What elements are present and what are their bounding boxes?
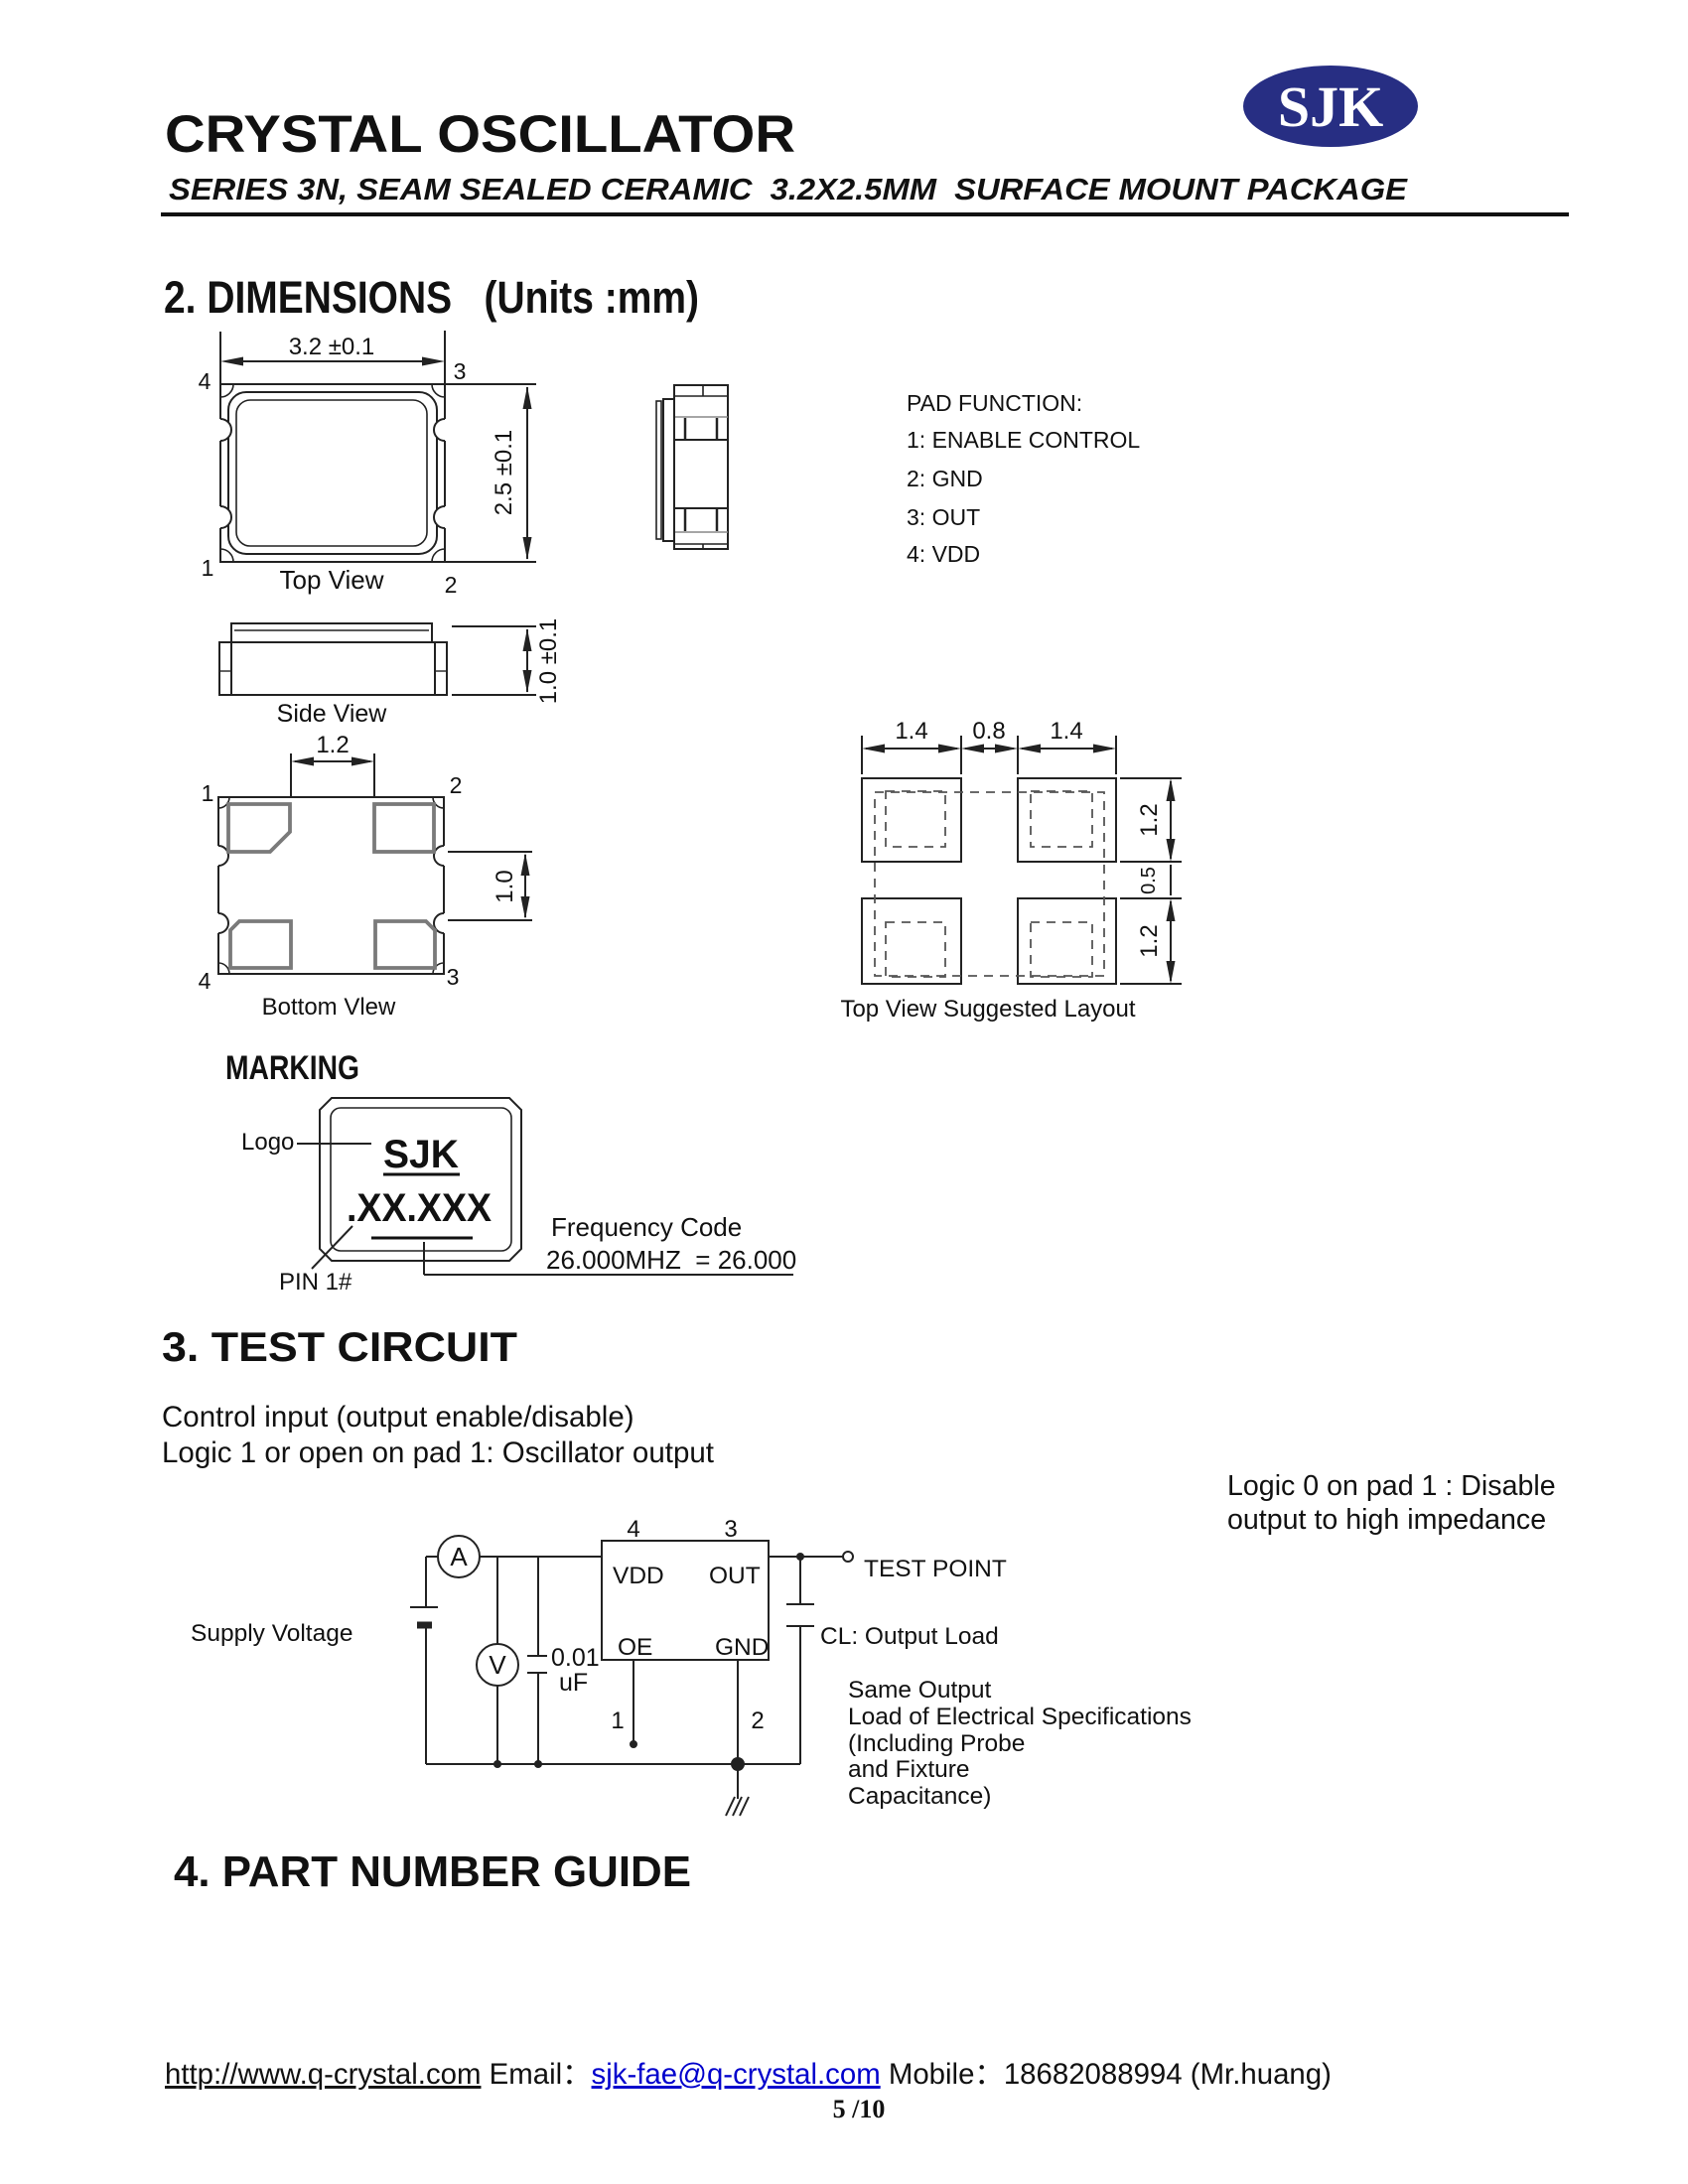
svg-text:2.5 ±0.1: 2.5 ±0.1 <box>491 430 517 516</box>
svg-text:SERIES 3N, SEAM SEALED CERAMIC: SERIES 3N, SEAM SEALED CERAMIC 3.2X2.5MM… <box>169 172 1408 206</box>
svg-text:and Fixture: and Fixture <box>848 1756 970 1783</box>
svg-text:SJK: SJK <box>1278 74 1383 139</box>
svg-text:3: OUT: 3: OUT <box>907 504 980 530</box>
svg-text:GND: GND <box>715 1634 769 1661</box>
svg-text:CRYSTAL OSCILLATOR: CRYSTAL OSCILLATOR <box>165 105 795 164</box>
svg-text:1: ENABLE CONTROL: 1: ENABLE CONTROL <box>907 427 1140 453</box>
svg-text:1.2: 1.2 <box>1136 924 1163 957</box>
svg-text:OUT: OUT <box>709 1563 761 1589</box>
svg-text:2. DIMENSIONS (Units :mm): 2. DIMENSIONS (Units :mm) <box>164 272 699 323</box>
svg-text:0.8: 0.8 <box>972 718 1005 745</box>
svg-text:1.2: 1.2 <box>1136 803 1163 836</box>
svg-text:1: 1 <box>611 1707 624 1734</box>
svg-text:.XX.XXX: .XX.XXX <box>347 1186 492 1230</box>
svg-text:3. TEST CIRCUIT: 3. TEST CIRCUIT <box>162 1323 517 1370</box>
svg-text:Top View: Top View <box>279 565 383 595</box>
svg-text:1.4: 1.4 <box>1050 718 1082 745</box>
svg-text:1: 1 <box>202 780 214 806</box>
svg-text:2: 2 <box>751 1707 764 1734</box>
svg-text:SJK: SJK <box>383 1133 459 1176</box>
svg-text:1.0: 1.0 <box>492 870 518 902</box>
svg-text:4: 4 <box>199 368 211 394</box>
svg-text:2: GND: 2: GND <box>907 466 983 491</box>
svg-text:MARKING: MARKING <box>225 1049 359 1087</box>
svg-text:2: 2 <box>445 572 458 598</box>
svg-text:Load of Electrical Specificati: Load of Electrical Specifications <box>848 1704 1192 1730</box>
svg-text:4. PART NUMBER GUIDE: 4. PART NUMBER GUIDE <box>174 1847 691 1896</box>
svg-text:4: 4 <box>627 1516 639 1543</box>
svg-text:PIN 1#: PIN 1# <box>279 1269 352 1296</box>
svg-text:Logo: Logo <box>241 1129 294 1156</box>
svg-text:1.0 ±0.1: 1.0 ±0.1 <box>535 618 562 705</box>
svg-text:(Including Probe: (Including Probe <box>848 1730 1025 1757</box>
svg-text:output to high impedance: output to high impedance <box>1227 1504 1546 1536</box>
svg-text:4: VDD: 4: VDD <box>907 541 980 567</box>
svg-text:TEST POINT: TEST POINT <box>864 1556 1007 1582</box>
svg-text:4: 4 <box>199 968 211 994</box>
svg-text:1.2: 1.2 <box>316 732 349 758</box>
svg-text:0.01: 0.01 <box>551 1644 600 1672</box>
svg-text:3: 3 <box>454 358 467 384</box>
svg-text:Bottom Vlew: Bottom Vlew <box>262 994 396 1021</box>
svg-text:Side View: Side View <box>277 700 388 728</box>
svg-text:5 /10: 5 /10 <box>833 2095 886 2123</box>
svg-text:Same Output: Same Output <box>848 1677 992 1704</box>
svg-text:0.5: 0.5 <box>1138 867 1160 894</box>
svg-text:Control input (output enable/d: Control input (output enable/disable) <box>162 1401 634 1433</box>
svg-text:2: 2 <box>450 772 463 798</box>
svg-text:V: V <box>489 1650 506 1680</box>
svg-text:OE: OE <box>618 1634 652 1661</box>
svg-text:26.000MHZ = 26.000: 26.000MHZ = 26.000 <box>546 1245 796 1275</box>
svg-text:Top View Suggested Layout: Top View Suggested Layout <box>840 996 1135 1023</box>
svg-text:CL: Output Load: CL: Output Load <box>820 1623 999 1650</box>
svg-text:Logic 1 or open on pad 1: Osci: Logic 1 or open on pad 1: Oscillator out… <box>162 1436 714 1469</box>
svg-text:Frequency Code: Frequency Code <box>551 1212 742 1242</box>
svg-text:A: A <box>450 1542 468 1571</box>
svg-text:1: 1 <box>202 555 214 581</box>
svg-text:uF: uF <box>559 1669 588 1697</box>
svg-text:Supply Voltage: Supply Voltage <box>191 1620 352 1647</box>
svg-text:PAD FUNCTION:: PAD FUNCTION: <box>907 390 1082 416</box>
svg-text:http://www.q-crystal.com Emai: http://www.q-crystal.com Email：sjk-fae@q… <box>165 2058 1332 2091</box>
svg-text:VDD: VDD <box>613 1563 664 1589</box>
svg-text:3: 3 <box>447 964 460 990</box>
svg-text:3.2 ±0.1: 3.2 ±0.1 <box>289 334 375 360</box>
svg-text:Capacitance): Capacitance) <box>848 1783 991 1810</box>
svg-text:Logic 0 on pad 1 : Disable: Logic 0 on pad 1 : Disable <box>1227 1470 1556 1502</box>
svg-text:3: 3 <box>724 1516 737 1543</box>
svg-text:1.4: 1.4 <box>895 718 927 745</box>
